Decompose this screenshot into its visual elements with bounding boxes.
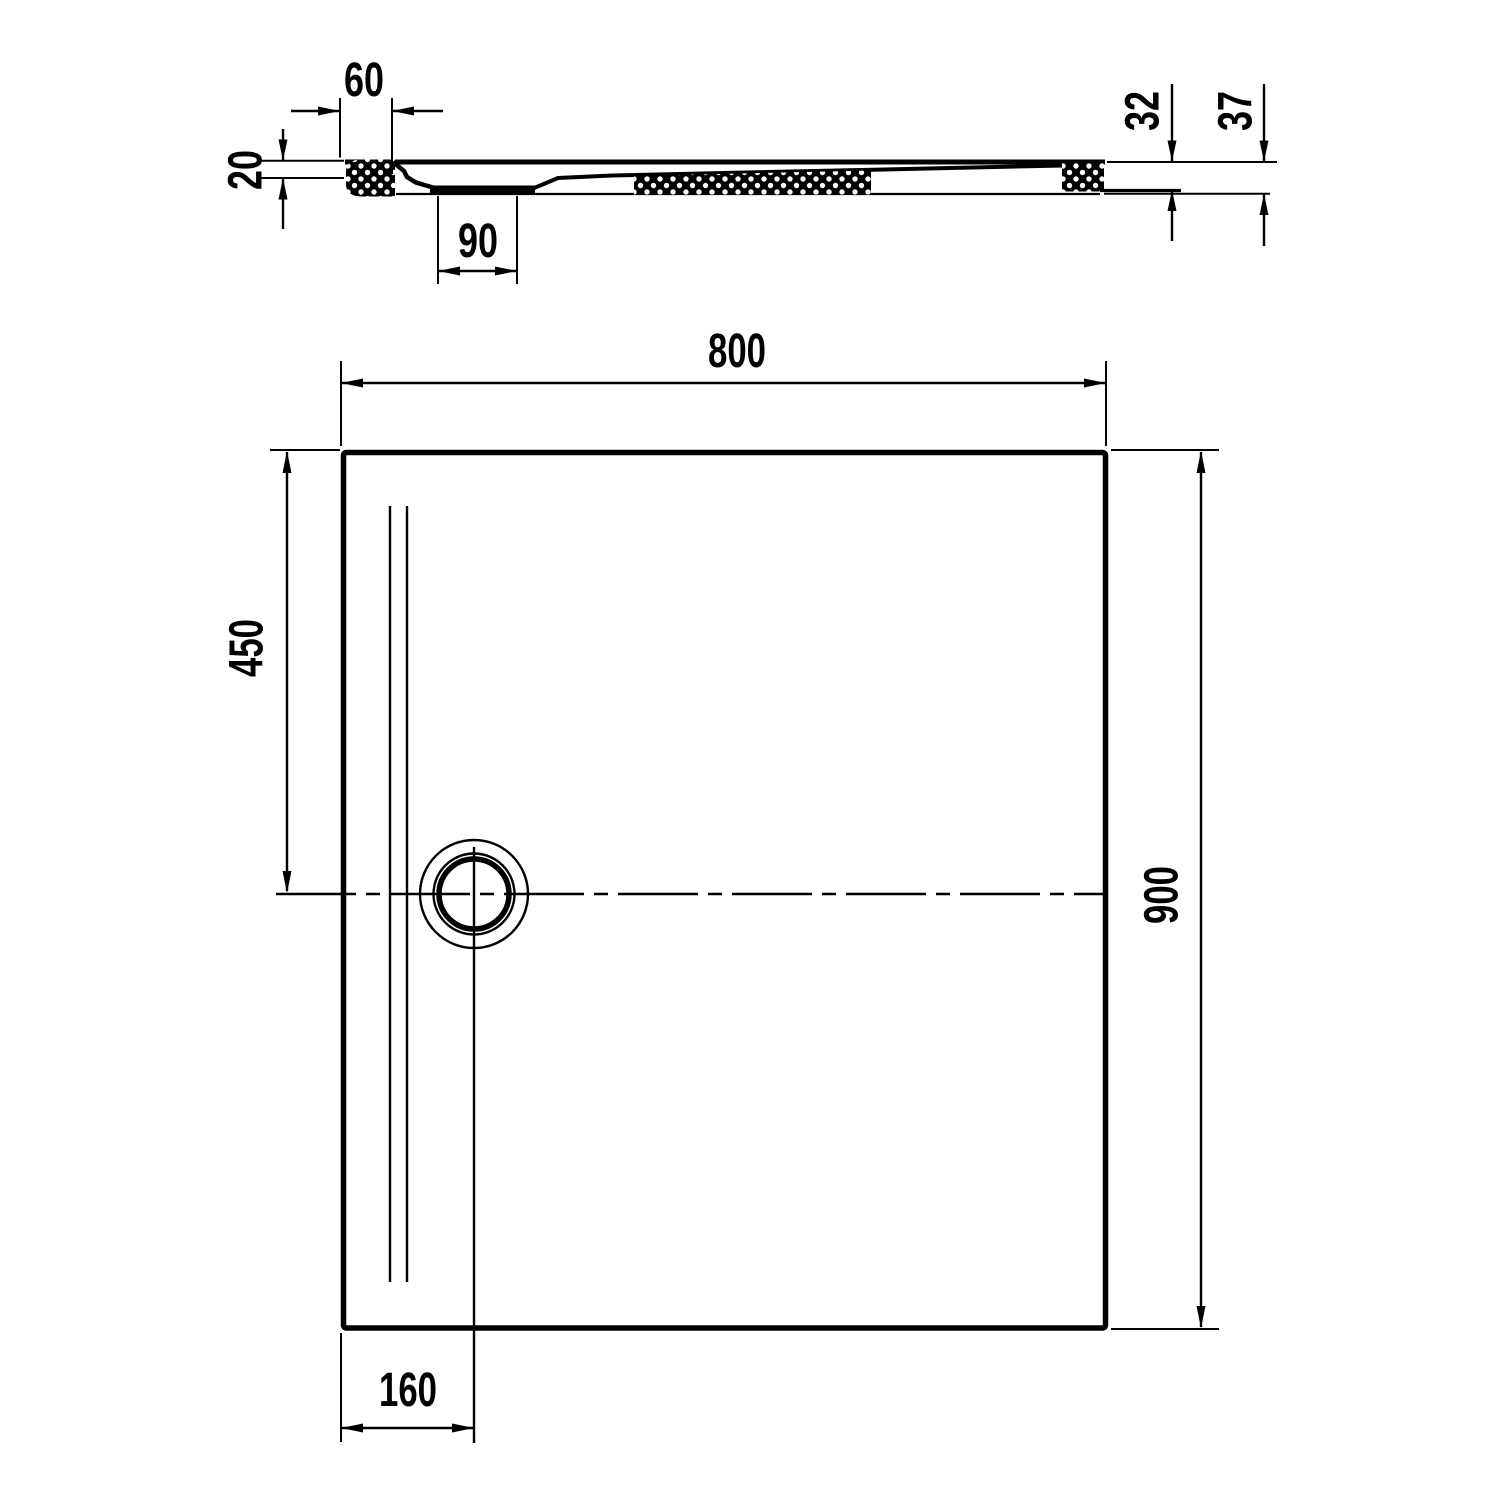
dim-label-37: 37	[1210, 91, 1263, 131]
dim-32-arrow-down	[1168, 141, 1177, 162]
dim-90-arrow-left	[438, 267, 460, 276]
dim-total-height: 37	[1210, 84, 1269, 246]
dim-flange-width: 60	[291, 54, 443, 174]
section-drain-slope	[393, 162, 433, 188]
dim-20-arrow-up	[279, 178, 288, 200]
dim-90-arrow-right	[495, 267, 517, 276]
dim-sump-width: 90	[438, 196, 517, 284]
tray-outline	[344, 453, 1106, 1329]
dim-20-arrow-down	[279, 140, 288, 161]
dim-label-450: 450	[221, 619, 274, 677]
plan-view: 800 450 900 160	[221, 325, 1220, 1443]
dim-label-60: 60	[344, 54, 384, 107]
dim-label-900: 900	[1136, 866, 1189, 924]
section-sump-bottom	[430, 186, 535, 194]
dim-60-arrow-left	[392, 107, 414, 116]
dim-160-arrow-left	[341, 1424, 363, 1433]
dim-160-arrow-right	[452, 1424, 474, 1433]
dim-label-20: 20	[220, 150, 273, 190]
section-view: 60 20 90 32	[220, 54, 1278, 284]
dim-width: 800	[341, 325, 1106, 446]
technical-drawing-canvas: 60 20 90 32	[0, 0, 1500, 1500]
section-top-surface	[345, 160, 1105, 165]
dim-900-arrow-up	[1197, 451, 1206, 473]
section-right-seal-block	[1062, 163, 1104, 192]
section-left-seal-block	[346, 160, 395, 197]
dim-label-800: 800	[708, 325, 766, 378]
shower-tray-drawing: 60 20 90 32	[0, 0, 1500, 1500]
dim-800-arrow-right	[1084, 379, 1106, 388]
dim-37-arrow-up	[1260, 194, 1269, 215]
dim-drain-offset-left: 160	[341, 1333, 474, 1442]
dim-900-arrow-down	[1197, 1306, 1206, 1328]
dim-label-90: 90	[458, 215, 498, 268]
dim-depth: 900	[1111, 450, 1219, 1329]
dim-450-arrow-up	[283, 451, 292, 473]
dim-800-arrow-left	[341, 379, 363, 388]
dim-label-32: 32	[1117, 91, 1170, 131]
dim-drain-offset-top: 450	[221, 450, 341, 893]
dim-label-160: 160	[379, 1364, 437, 1417]
dim-60-arrow-right	[318, 107, 340, 116]
dim-450-arrow-down	[283, 871, 292, 893]
dim-37-arrow-down	[1260, 141, 1269, 162]
dim-rim-thickness: 20	[220, 129, 345, 229]
